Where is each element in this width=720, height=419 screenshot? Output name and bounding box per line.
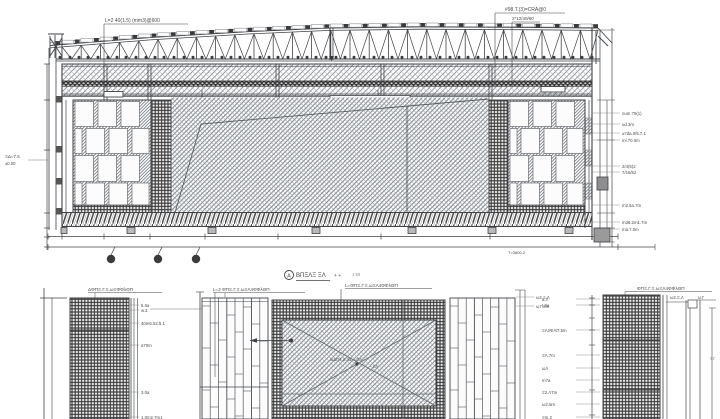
svg-text:#98.T.(3)=CRA@0: #98.T.(3)=CRA@0 xyxy=(505,7,546,13)
svg-text:ω2.Ξ.Λ: ω2.Ξ.Λ xyxy=(670,295,684,300)
svg-text:±0.00: ±0.00 xyxy=(5,161,16,166)
svg-text:Ξ2.Λ7m: Ξ2.Λ7m xyxy=(542,390,558,395)
svg-text:ΞΛ.7m: ΞΛ.7m xyxy=(542,353,555,358)
svg-text:T=3800.2: T=3800.2 xyxy=(508,250,526,255)
svg-text:ΞΛ2ΦΛΠ.5m: ΞΛ2ΦΛΠ.5m xyxy=(542,328,567,333)
svg-text:ΒΠΞΛΞ ΞΛ: ΒΠΞΛΞ ΞΛ xyxy=(296,273,326,279)
svg-text:ml.70.0m: ml.70.0m xyxy=(622,138,640,143)
svg-text:- ΞΛ: - ΞΛ xyxy=(370,364,378,369)
svg-text:+ +: + + xyxy=(334,273,341,279)
svg-text:ΦΠΞ.Γ.Ξ.ωΞΛ4ΦΦλΘΠ: ΦΠΞ.Γ.Ξ.ωΞΛ4ΦΦλΘΠ xyxy=(637,286,685,291)
svg-text:ωΛ: ωΛ xyxy=(542,366,548,371)
svg-text:2*12/40/60: 2*12/40/60 xyxy=(512,16,534,21)
svg-text:40m6.52.5.1: 40m6.52.5.1 xyxy=(141,321,165,326)
svg-text:1:50: 1:50 xyxy=(352,272,361,277)
svg-text:t.2a: t.2a xyxy=(542,303,550,308)
svg-text:m7a: m7a xyxy=(542,378,551,383)
svg-text:ma.7.0m: ma.7.0m xyxy=(622,227,639,232)
svg-text:L=2 40(1.5) (mm3)@600: L=2 40(1.5) (mm3)@600 xyxy=(105,18,160,24)
svg-text:ΔΦΠΞ.Γ.Ξ.ωΞΦΦλΘΠ: ΔΦΠΞ.Γ.Ξ.ωΞΦΦλΘΠ xyxy=(88,287,133,292)
svg-text:7/16/52: 7/16/52 xyxy=(622,170,637,175)
svg-text:Ξm.2: Ξm.2 xyxy=(542,415,553,419)
svg-text:a70m: a70m xyxy=(141,343,152,348)
svg-text:A: A xyxy=(287,274,291,280)
svg-text:ω7: ω7 xyxy=(698,295,704,300)
svg-text:a.Ξ: a.Ξ xyxy=(542,297,549,302)
svg-text:2/4(5)2: 2/4(5)2 xyxy=(622,164,636,169)
svg-text:u7da.0/5.7.1: u7da.0/5.7.1 xyxy=(622,131,647,136)
svg-text:ud.3m: ud.3m xyxy=(622,122,634,127)
svg-text:L=2 ΦΠΞ.Γ.Ξ.ωΞΛ4ΦΦλΘΠ: L=2 ΦΠΞ.Γ.Ξ.ωΞΛ4ΦΦλΘΠ xyxy=(213,287,270,292)
svg-text:ω2.5m: ω2.5m xyxy=(542,402,555,407)
svg-text:m2.5a.7m: m2.5a.7m xyxy=(622,203,642,208)
svg-text:w.3: w.3 xyxy=(141,308,148,313)
svg-text:Ξ7: Ξ7 xyxy=(710,356,716,361)
svg-text:ΞΔ=7.5: ΞΔ=7.5 xyxy=(5,154,20,159)
svg-text:ωΔΠ4.Ξ.Λ2 = ΠΛ: ωΔΠ4.Ξ.Λ2 = ΠΛ xyxy=(330,357,362,362)
svg-text:3.0a: 3.0a xyxy=(141,390,150,395)
svg-text:1.0m2.7m1: 1.0m2.7m1 xyxy=(141,415,163,419)
svg-text:L=ΦΠΞ.Γ.Ξ.ωΞΛ4ΦΦλΘΠ: L=ΦΠΞ.Γ.Ξ.ωΞΛ4ΦΦλΘΠ xyxy=(345,283,398,288)
svg-text:num.75(1): num.75(1) xyxy=(622,111,642,116)
svg-text:m36.2m1.7m: m36.2m1.7m xyxy=(622,220,647,225)
